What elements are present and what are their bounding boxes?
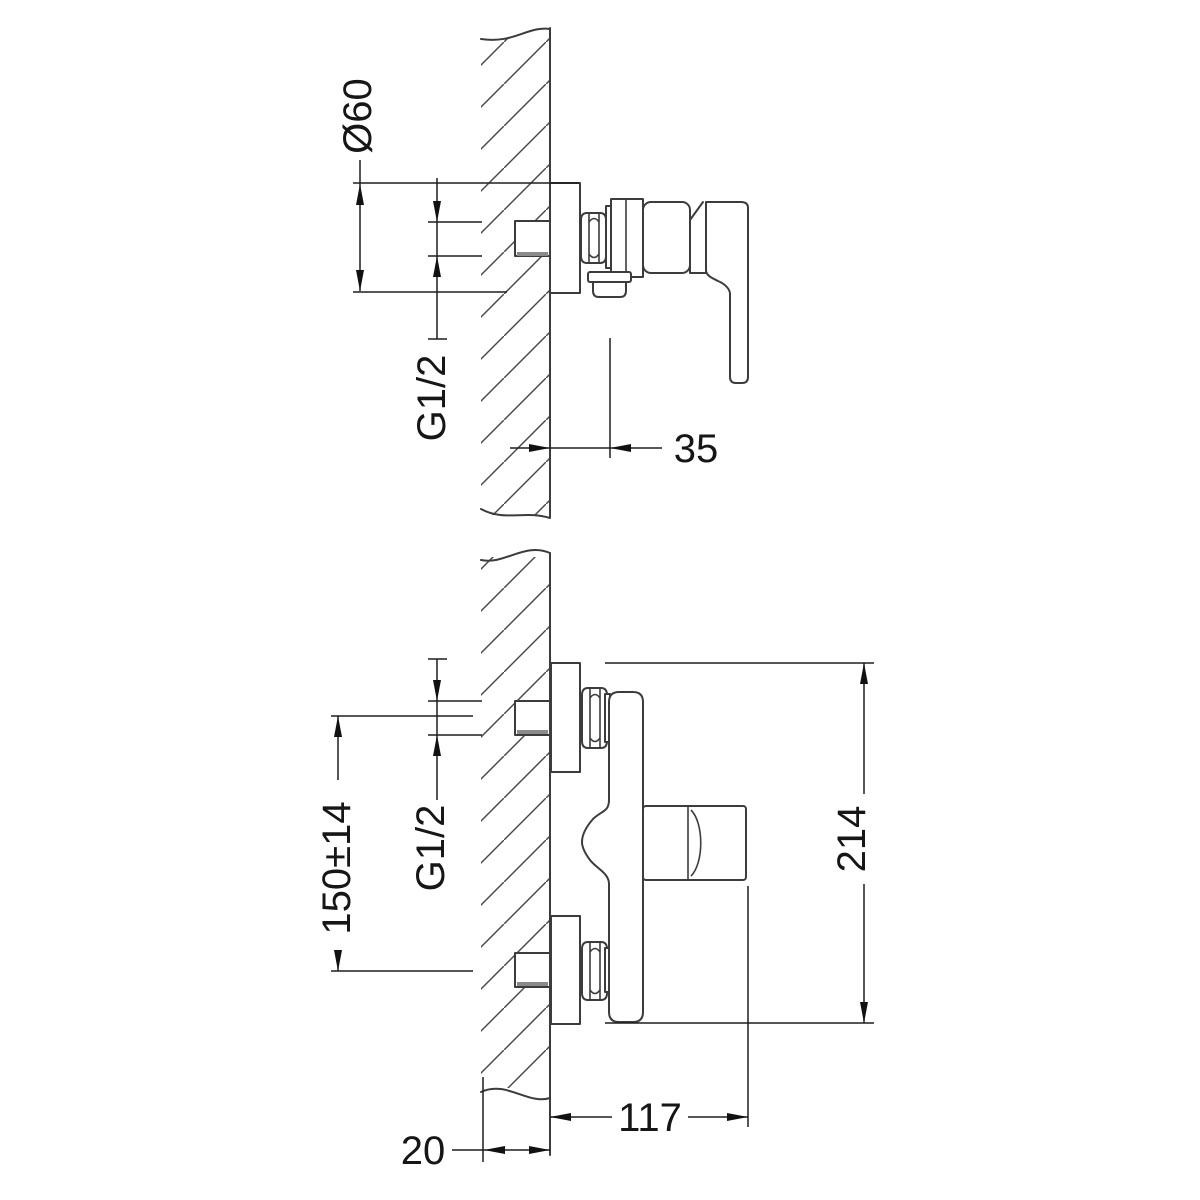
outlet-nozzle xyxy=(593,282,626,297)
cartridge-knob xyxy=(643,806,746,880)
pipe-stub-top xyxy=(515,701,550,735)
dim-thread-lower: G1/2 xyxy=(409,659,482,891)
body-slope xyxy=(690,202,706,273)
mixer-body xyxy=(643,202,690,273)
dim-label-outlet-offset: 35 xyxy=(674,427,719,471)
shower-mixer-dimension-drawing: Ø60 G1/2 35 xyxy=(0,0,1200,1200)
outlet-flange xyxy=(588,272,631,282)
dim-pipe-stickout: 20 xyxy=(401,1077,550,1173)
hex-nut-bottom xyxy=(582,942,607,1000)
dim-label-interaxis: 150±14 xyxy=(315,801,359,934)
dim-label-thread-lower: G1/2 xyxy=(409,805,453,892)
escutcheon-bottom xyxy=(551,916,580,1024)
connection-collar xyxy=(611,199,643,277)
pipe-stub-bottom xyxy=(515,953,550,987)
dim-label-flange-diameter: Ø60 xyxy=(336,78,380,154)
hex-nut xyxy=(581,213,606,263)
dim-label-total-height: 214 xyxy=(830,806,874,873)
pipe-stub xyxy=(515,221,550,256)
wall-hatch-lower xyxy=(481,557,550,1088)
lever-handle xyxy=(706,202,748,383)
hex-nut-top xyxy=(582,688,607,748)
dim-label-thread-upper: G1/2 xyxy=(410,355,454,442)
escutcheon-top xyxy=(551,663,580,772)
technical-drawing-page: Ø60 G1/2 35 xyxy=(0,0,1200,1200)
dim-label-pipe-stickout: 20 xyxy=(401,1129,446,1173)
dim-label-projection: 117 xyxy=(618,1096,682,1140)
wall-break-bottom xyxy=(481,1089,550,1100)
escutcheon-flange xyxy=(550,183,580,293)
dim-thread-upper: G1/2 xyxy=(410,178,482,441)
wall-hatch-upper xyxy=(481,38,550,515)
